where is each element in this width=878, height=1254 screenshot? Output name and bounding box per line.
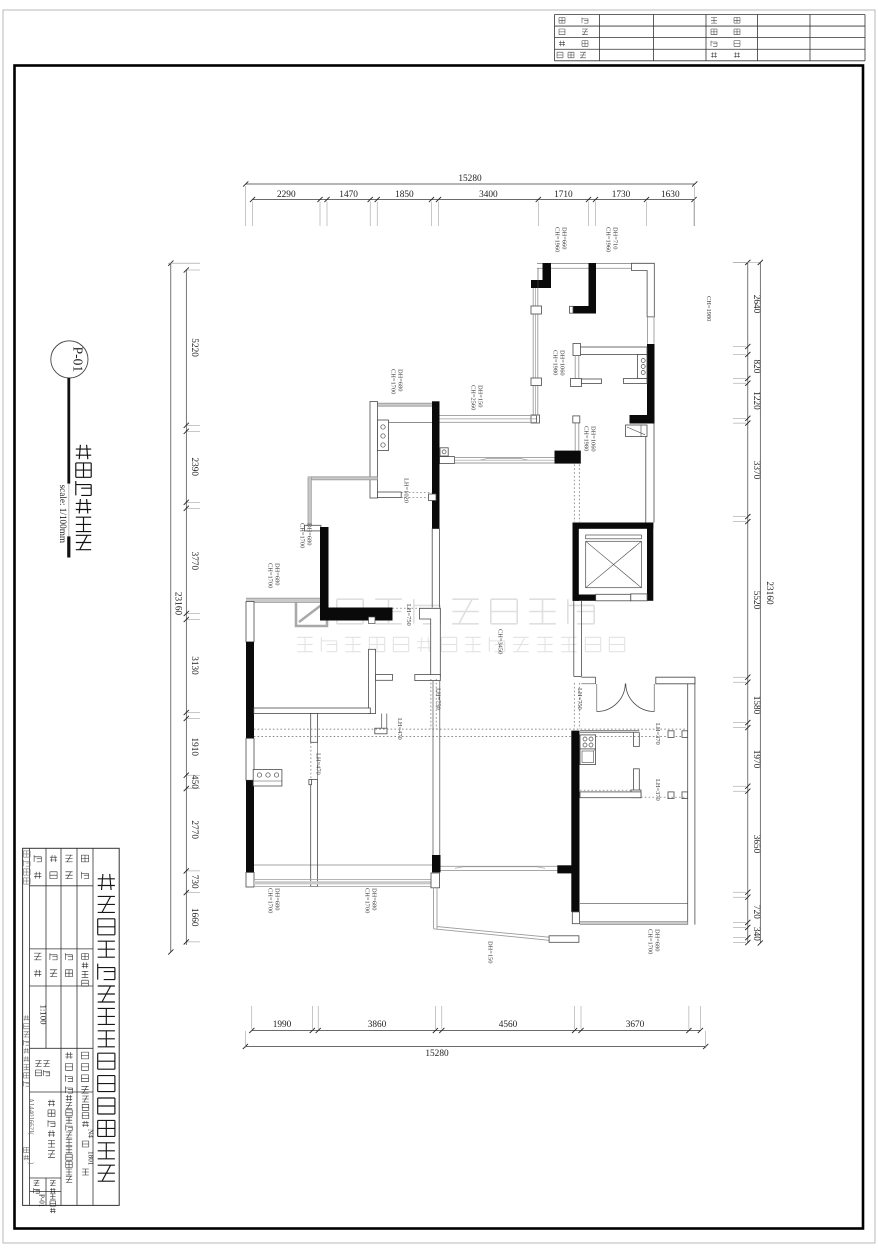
svg-text:730: 730 bbox=[189, 875, 199, 889]
svg-text:P-01: P-01 bbox=[38, 1194, 46, 1208]
svg-text:1470: 1470 bbox=[339, 190, 358, 200]
svg-text:DH=680: DH=680 bbox=[397, 369, 404, 391]
svg-text:DH=680: DH=680 bbox=[274, 888, 281, 910]
svg-text:720: 720 bbox=[751, 905, 761, 919]
svg-text:5520: 5520 bbox=[751, 591, 761, 610]
svg-text:3400: 3400 bbox=[479, 190, 498, 200]
svg-text:DH=680: DH=680 bbox=[371, 888, 378, 910]
svg-text:DH=150: DH=150 bbox=[477, 385, 484, 407]
svg-text:1:100: 1:100 bbox=[39, 1004, 49, 1025]
svg-text:1660: 1660 bbox=[189, 908, 199, 927]
svg-text:scale: 1/100mm: scale: 1/100mm bbox=[58, 485, 68, 543]
svg-text:LH=470: LH=470 bbox=[396, 718, 403, 740]
svg-text:CH=1980: CH=1980 bbox=[552, 350, 559, 375]
svg-text:DH=1060: DH=1060 bbox=[590, 426, 597, 452]
svg-text:LH=750: LH=750 bbox=[435, 688, 442, 710]
svg-text:DH=150: DH=150 bbox=[487, 941, 494, 963]
svg-text:1850: 1850 bbox=[395, 190, 414, 200]
svg-text:CH=1700: CH=1700 bbox=[647, 929, 654, 954]
svg-text:LH=470: LH=470 bbox=[314, 753, 321, 775]
svg-text:1580: 1580 bbox=[751, 696, 761, 715]
svg-text:CH=1960: CH=1960 bbox=[554, 227, 561, 252]
svg-text:DH=660: DH=660 bbox=[561, 227, 568, 249]
svg-text:CH=1960: CH=1960 bbox=[605, 227, 612, 252]
svg-text:N4: N4 bbox=[87, 1129, 95, 1138]
svg-text:CH=1700: CH=1700 bbox=[267, 888, 274, 913]
svg-text:2290: 2290 bbox=[277, 190, 296, 200]
svg-text:CH=3450: CH=3450 bbox=[497, 629, 504, 654]
svg-text:23160: 23160 bbox=[173, 592, 183, 616]
svg-text:5220: 5220 bbox=[189, 338, 199, 357]
svg-text:CH=1700: CH=1700 bbox=[299, 523, 306, 548]
svg-text:LH=370: LH=370 bbox=[654, 779, 661, 801]
svg-text:1970: 1970 bbox=[751, 750, 761, 769]
svg-text:A14401662I(: A14401662I( bbox=[27, 1098, 34, 1135]
svg-text:2770: 2770 bbox=[189, 820, 199, 839]
svg-text:DH=680: DH=680 bbox=[654, 929, 661, 951]
svg-text:4560: 4560 bbox=[499, 1020, 518, 1030]
svg-text:2390: 2390 bbox=[189, 458, 199, 477]
svg-text:LH=750: LH=750 bbox=[576, 688, 583, 710]
svg-text:15280: 15280 bbox=[425, 1049, 449, 1059]
svg-text:3860: 3860 bbox=[368, 1020, 387, 1030]
svg-text:CH=1700: CH=1700 bbox=[364, 888, 371, 913]
svg-text:DH=1060: DH=1060 bbox=[559, 350, 566, 376]
svg-text:340: 340 bbox=[751, 927, 761, 941]
svg-text:CH=1700: CH=1700 bbox=[267, 563, 274, 588]
svg-text:DH=680: DH=680 bbox=[306, 523, 313, 545]
svg-text:LH=1020: LH=1020 bbox=[403, 478, 410, 503]
svg-text:CH=1700: CH=1700 bbox=[390, 369, 397, 394]
svg-text:LH=750: LH=750 bbox=[405, 604, 412, 626]
svg-text:DH=680: DH=680 bbox=[274, 563, 281, 585]
svg-text:1990: 1990 bbox=[273, 1020, 292, 1030]
svg-text:1910: 1910 bbox=[189, 738, 199, 757]
svg-text:15280: 15280 bbox=[458, 174, 482, 184]
svg-text:CH=2560: CH=2560 bbox=[470, 385, 477, 410]
svg-text:450: 450 bbox=[189, 775, 199, 789]
svg-text:820: 820 bbox=[751, 360, 761, 374]
svg-text:): ) bbox=[27, 1162, 34, 1164]
svg-text:1630: 1630 bbox=[661, 190, 680, 200]
svg-text:LH=370: LH=370 bbox=[654, 723, 661, 745]
svg-text:1801: 1801 bbox=[87, 1151, 95, 1166]
svg-text:1710: 1710 bbox=[554, 190, 573, 200]
svg-text:DH=710: DH=710 bbox=[612, 227, 619, 249]
svg-text:1730: 1730 bbox=[612, 190, 631, 200]
svg-text:3650: 3650 bbox=[751, 835, 761, 854]
svg-text:CH=1980: CH=1980 bbox=[583, 426, 590, 451]
svg-text:3770: 3770 bbox=[189, 552, 199, 571]
svg-text:1220: 1220 bbox=[751, 391, 761, 410]
svg-text:CH=1980: CH=1980 bbox=[705, 296, 712, 321]
svg-text:2640: 2640 bbox=[751, 295, 761, 314]
svg-text:P-01: P-01 bbox=[71, 347, 86, 373]
svg-text:3130: 3130 bbox=[189, 656, 199, 675]
svg-text:3370: 3370 bbox=[751, 461, 761, 480]
svg-text:3670: 3670 bbox=[626, 1020, 645, 1030]
svg-text:23160: 23160 bbox=[764, 581, 774, 605]
